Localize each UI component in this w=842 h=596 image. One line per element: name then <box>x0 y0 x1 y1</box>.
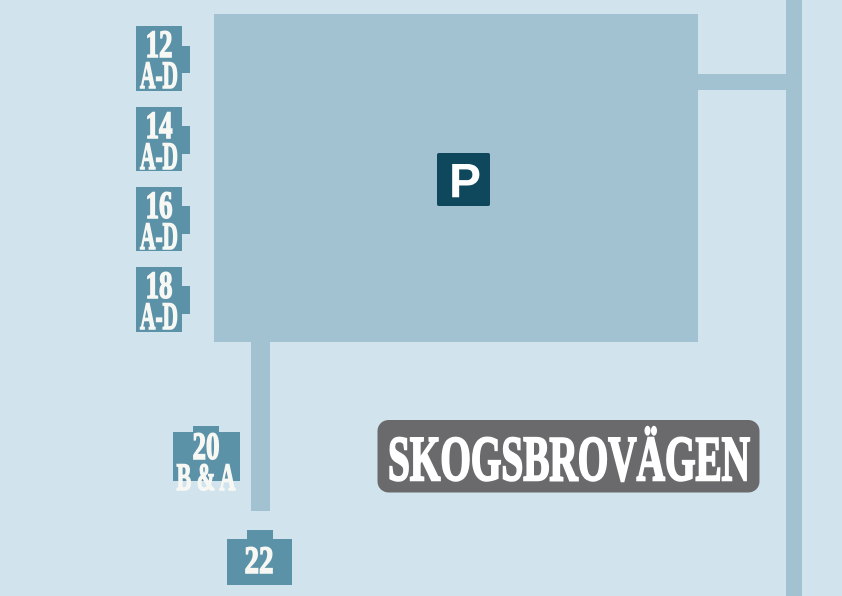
svg-text:A-D: A-D <box>140 215 178 258</box>
svg-text:A-D: A-D <box>140 54 178 97</box>
svg-text:A-D: A-D <box>140 135 178 178</box>
svg-text:P: P <box>449 155 481 208</box>
svg-text:A-D: A-D <box>140 295 178 338</box>
svg-text:22: 22 <box>245 539 274 582</box>
svg-text:B & A: B & A <box>177 456 236 499</box>
svg-text:SKOGSBROVÄGEN: SKOGSBROVÄGEN <box>388 424 750 494</box>
